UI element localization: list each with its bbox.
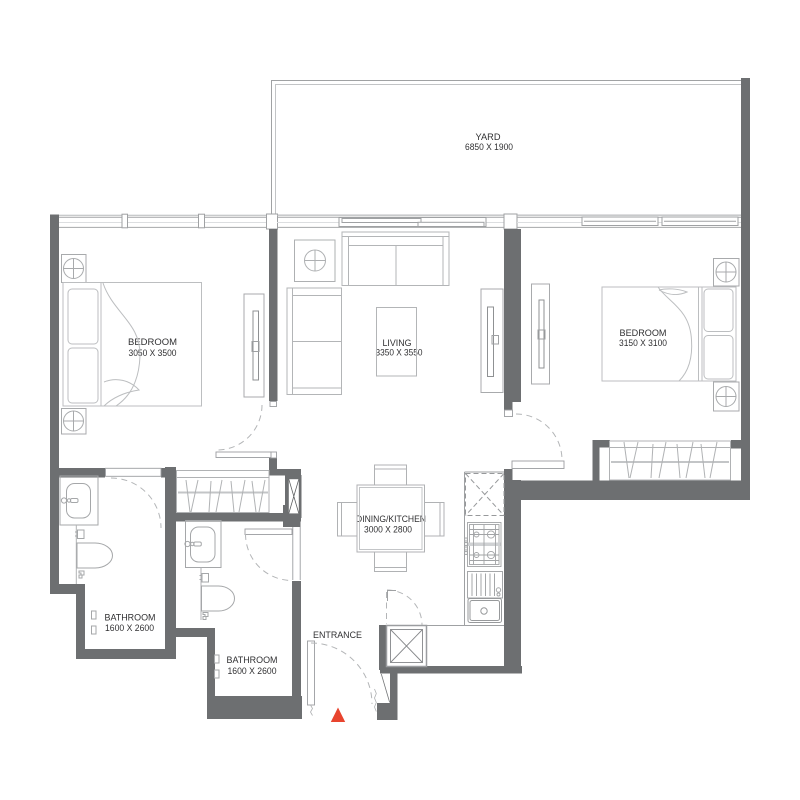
svg-text:ENTRANCE: ENTRANCE: [313, 630, 362, 641]
svg-text:BATHROOM: BATHROOM: [227, 655, 278, 666]
svg-text:DINING/KITCHEN: DINING/KITCHEN: [356, 514, 426, 525]
svg-text:6850 X 1900: 6850 X 1900: [465, 142, 513, 153]
svg-text:BATHROOM: BATHROOM: [105, 613, 156, 624]
svg-text:3350 X 3550: 3350 X 3550: [376, 348, 423, 359]
svg-text:BEDROOM: BEDROOM: [128, 337, 177, 348]
svg-text:3050 X 3500: 3050 X 3500: [129, 348, 177, 359]
svg-text:3150 X 3100: 3150 X 3100: [619, 338, 667, 349]
svg-text:1600 X 2600: 1600 X 2600: [105, 623, 154, 634]
svg-text:1600 X 2600: 1600 X 2600: [228, 666, 277, 677]
svg-text:3000 X 2800: 3000 X 2800: [364, 525, 412, 536]
